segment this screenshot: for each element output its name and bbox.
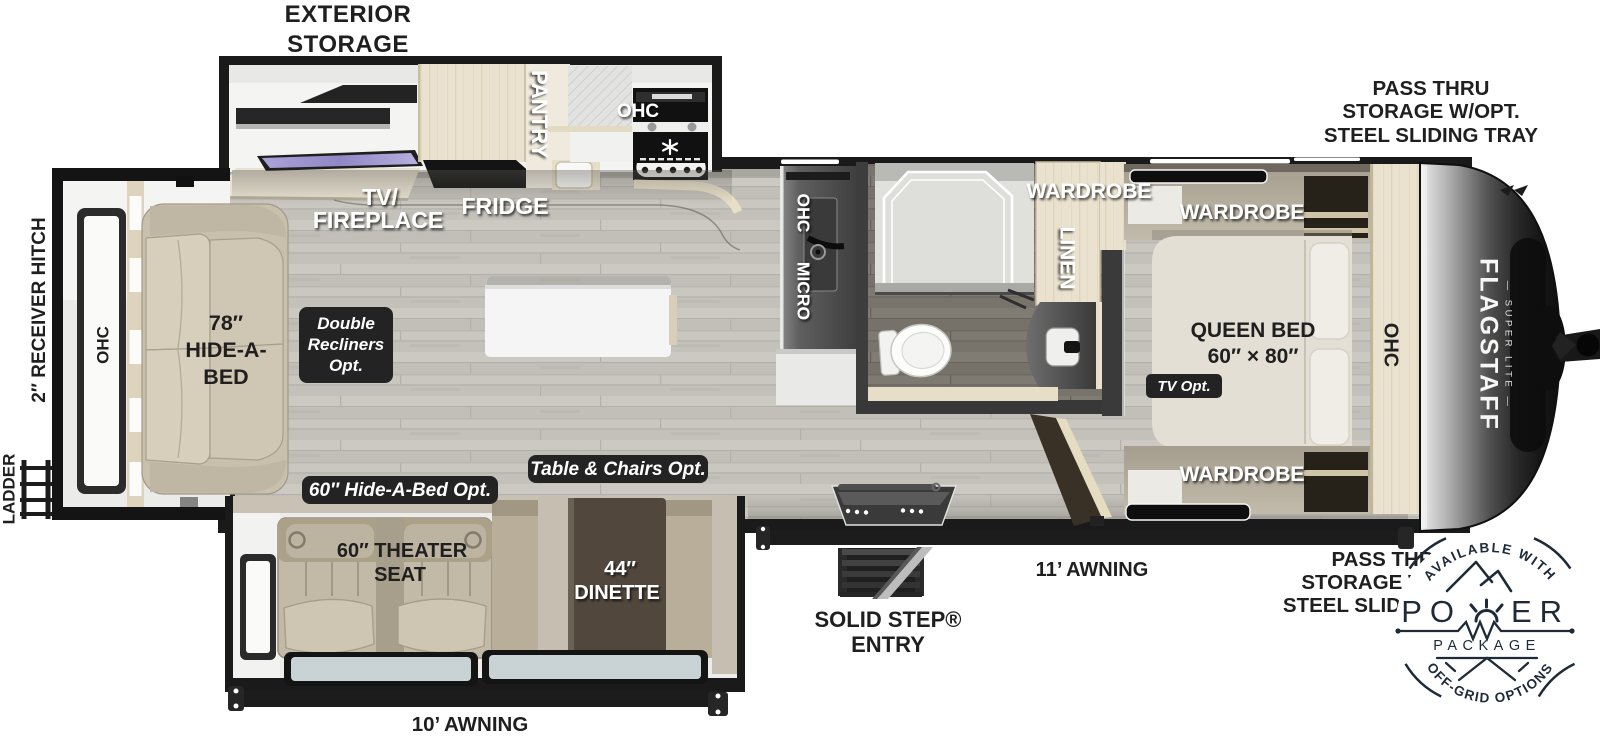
- svg-text:HIDE-A-: HIDE-A-: [185, 338, 266, 362]
- svg-text:DINETTE: DINETTE: [574, 582, 660, 604]
- svg-text:SOLID STEP®: SOLID STEP®: [814, 607, 961, 632]
- svg-text:LADDER: LADDER: [0, 454, 18, 525]
- svg-text:QUEEN BED: QUEEN BED: [1191, 319, 1316, 342]
- svg-text:MICRO: MICRO: [793, 262, 813, 320]
- svg-text:WARDROBE: WARDROBE: [1180, 463, 1305, 486]
- svg-text:STORAGE W/OPT.: STORAGE W/OPT.: [1342, 100, 1519, 123]
- svg-text:BED: BED: [203, 365, 248, 389]
- svg-text:FRIDGE: FRIDGE: [462, 193, 549, 219]
- svg-text:Table & Chairs Opt.: Table & Chairs Opt.: [530, 459, 706, 480]
- svg-text:PASS THRU: PASS THRU: [1373, 77, 1490, 100]
- svg-text:Recliners: Recliners: [308, 335, 385, 354]
- svg-text:FLAGSTAFF: FLAGSTAFF: [1474, 258, 1502, 432]
- svg-text:WARDROBE: WARDROBE: [1027, 180, 1152, 203]
- svg-text:2″ RECEIVER HITCH: 2″ RECEIVER HITCH: [29, 217, 50, 402]
- svg-text:STORAGE: STORAGE: [287, 31, 409, 58]
- svg-text:60″ × 80″: 60″ × 80″: [1208, 345, 1299, 368]
- svg-text:Double: Double: [317, 314, 375, 333]
- svg-text:Opt.: Opt.: [329, 356, 363, 375]
- svg-text:11’ AWNING: 11’ AWNING: [1036, 559, 1149, 581]
- svg-text:WARDROBE: WARDROBE: [1180, 201, 1305, 224]
- svg-text:78″: 78″: [209, 311, 243, 335]
- svg-text:ER: ER: [1511, 594, 1570, 629]
- svg-text:LINEN: LINEN: [1055, 227, 1078, 290]
- svg-text:— SUPER LITE —: — SUPER LITE —: [1502, 281, 1513, 410]
- svg-text:10’ AWNING: 10’ AWNING: [412, 713, 529, 736]
- svg-text:OHC: OHC: [793, 194, 813, 233]
- svg-text:STEEL SLIDING TRAY: STEEL SLIDING TRAY: [1324, 124, 1538, 147]
- svg-text:FIREPLACE: FIREPLACE: [313, 207, 443, 233]
- svg-text:PO: PO: [1401, 594, 1462, 629]
- svg-text:PACKAGE: PACKAGE: [1433, 638, 1541, 654]
- svg-text:OHC: OHC: [93, 326, 112, 364]
- svg-text:EXTERIOR: EXTERIOR: [285, 1, 412, 28]
- svg-text:60″ Hide-A-Bed Opt.: 60″ Hide-A-Bed Opt.: [309, 480, 491, 501]
- svg-text:TV Opt.: TV Opt.: [1157, 378, 1210, 395]
- svg-text:44″: 44″: [604, 558, 636, 580]
- svg-text:OHC: OHC: [617, 101, 660, 122]
- svg-text:OHC: OHC: [1380, 323, 1402, 367]
- svg-text:SEAT: SEAT: [374, 564, 426, 586]
- svg-text:60″ THEATER: 60″ THEATER: [337, 540, 468, 562]
- svg-text:PANTRY: PANTRY: [527, 70, 552, 158]
- svg-text:ENTRY: ENTRY: [851, 632, 925, 657]
